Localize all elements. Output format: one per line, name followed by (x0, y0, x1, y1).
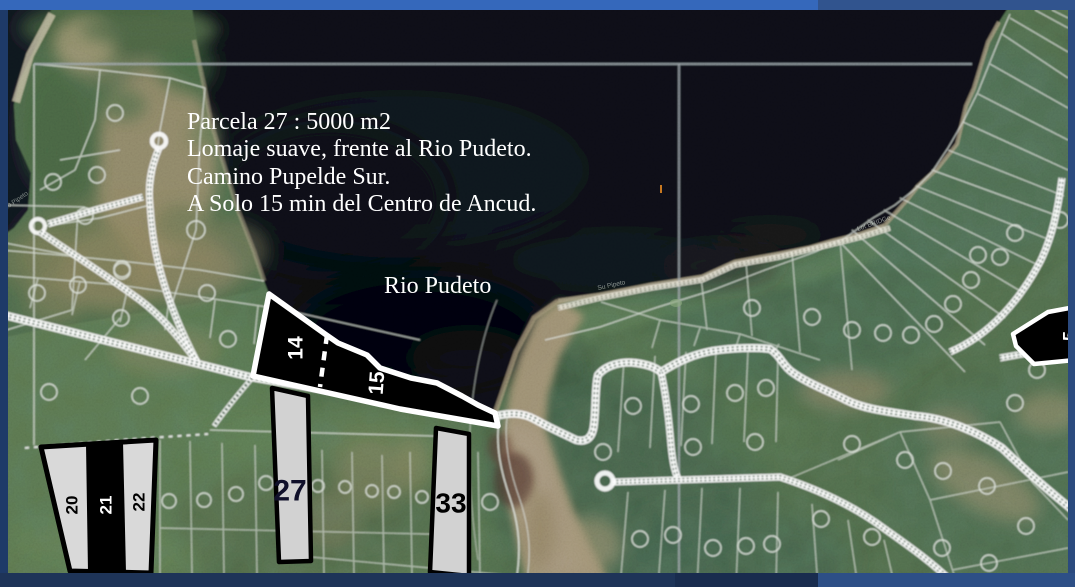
svg-text:27: 27 (273, 475, 306, 508)
svg-text:33: 33 (435, 488, 466, 519)
svg-text:22: 22 (130, 493, 149, 512)
svg-text:20: 20 (63, 496, 82, 515)
svg-text:Lomaje suave, frente al Rio Pu: Lomaje suave, frente al Rio Pudeto. (187, 136, 532, 162)
svg-text:15: 15 (365, 370, 390, 395)
svg-text:Camino Pupelde Sur.: Camino Pupelde Sur. (187, 164, 390, 190)
svg-text:Parcela 27 : 5000 m2: Parcela 27 : 5000 m2 (187, 109, 391, 135)
svg-text:A Solo 15 min del Centro de An: A Solo 15 min del Centro de Ancud. (187, 191, 536, 217)
svg-text:14: 14 (285, 336, 308, 360)
svg-text:21: 21 (97, 496, 116, 515)
svg-text:Rio Pudeto: Rio Pudeto (384, 273, 491, 299)
